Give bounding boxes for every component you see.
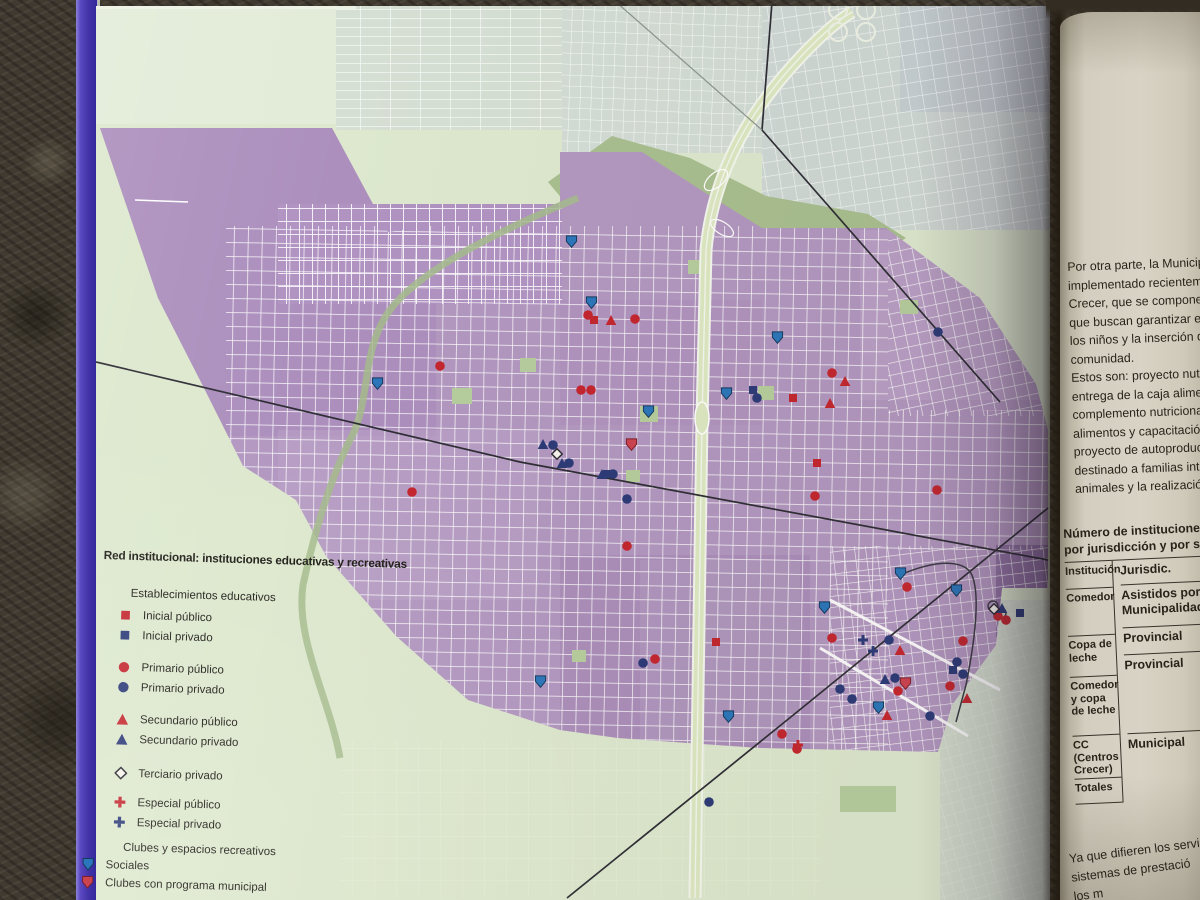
especial-privado-icon [106, 815, 132, 829]
book-spine [76, 0, 98, 900]
legend-rows: Establecimientos educativosInicial públi… [94, 585, 433, 900]
table-cell-institucion: Comedor [1066, 588, 1115, 637]
legend-item-secundario-privado: Secundario privado [98, 731, 428, 756]
table-cell-institucion: Totales [1075, 778, 1123, 805]
legend-item-label: Terciario privado [138, 768, 223, 782]
legend-item-label: Especial privado [137, 817, 222, 831]
secundario-privado-icon [108, 732, 134, 746]
table-cell-institucion: CC (Centros Crecer) [1073, 735, 1122, 780]
table-cell-jurisdiccion: Jurisdic. [1120, 557, 1200, 586]
legend-item-label: Sociales [105, 859, 149, 872]
table-cell-institucion: Institución [1065, 561, 1113, 590]
especial-publico-icon [106, 795, 132, 809]
club-social-icon [74, 857, 100, 871]
table-cell-institucion: Comedor y copa de leche [1070, 676, 1120, 737]
institutions-table: Número de instituciones por jurisdicción… [1063, 520, 1200, 805]
legend-item-label: Secundario privado [139, 734, 238, 749]
legend-item-label: Secundario público [140, 714, 238, 729]
inicial-publico-icon [112, 608, 138, 622]
bottom-text-fragment: Ya que difieren los servicios bsistemas … [1068, 829, 1200, 900]
paragraph-line: animales y la realización de [1075, 475, 1200, 499]
body-text-column: Por otra parte, la Municipaimplementado … [1067, 253, 1200, 499]
legend-item-label: Primario público [141, 662, 224, 676]
legend-item-label: Especial público [137, 797, 220, 811]
club-programa-municipal-icon [74, 875, 100, 889]
table-cell-jurisdiccion: Municipal [1128, 731, 1200, 776]
table-title: Número de instituciones por jurisdicción… [1063, 520, 1200, 563]
table-cell-jurisdiccion: Provincial [1124, 652, 1200, 735]
table-column-jurisdiccion: Jurisdic.Asistidos por MunicipalidadProv… [1113, 557, 1200, 803]
secundario-publico-icon [109, 712, 135, 726]
legend-item-label: Inicial privado [142, 630, 213, 644]
legend-section-header: Establecimientos educativos [102, 585, 432, 610]
table-cell-jurisdiccion: Provincial [1123, 625, 1200, 656]
map-legend: Red institucional: instituciones educati… [94, 548, 434, 900]
legend-item-inicial-privado: Inicial privado [101, 627, 431, 652]
terciario-privado-icon [107, 766, 133, 780]
inicial-privado-icon [111, 628, 137, 642]
legend-item-especial-privado: Especial privado [96, 814, 426, 839]
legend-item-label: Inicial público [143, 610, 212, 624]
primario-publico-icon [110, 660, 136, 674]
photo-of-open-atlas: Red institucional: instituciones educati… [0, 0, 1200, 900]
table-cell-institucion: Copa de leche [1068, 635, 1117, 678]
legend-item-terciario-privado: Terciario privado [97, 765, 427, 790]
atlas-text-page: Por otra parte, la Municipaimplementado … [1060, 12, 1200, 900]
primario-privado-icon [110, 680, 136, 694]
table-cell-jurisdiccion: Asistidos por Municipalidad [1121, 582, 1200, 629]
legend-item-primario-privado: Primario privado [100, 679, 430, 704]
legend-item-label: Primario privado [141, 682, 225, 696]
